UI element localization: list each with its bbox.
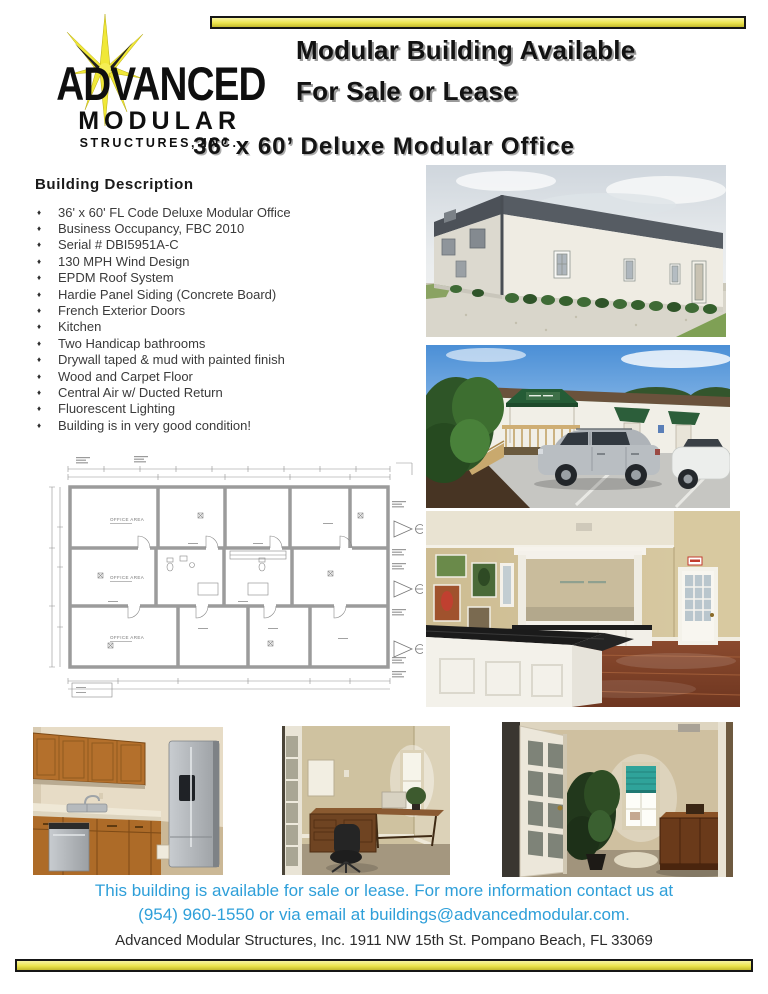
- bottom-accent-bar: [15, 959, 753, 972]
- description-item: ♦Two Handicap bathrooms: [37, 335, 291, 351]
- description-item: ♦Drywall taped & mud with painted finish: [37, 352, 291, 368]
- description-item-text: 130 MPH Wind Design: [58, 254, 190, 269]
- diamond-bullet-icon: ♦: [37, 388, 58, 397]
- description-item-text: Wood and Carpet Floor: [58, 369, 193, 384]
- logo-line-advanced: ADVANCED: [56, 60, 236, 107]
- description-item-text: EPDM Roof System: [58, 270, 174, 285]
- diamond-bullet-icon: ♦: [37, 306, 58, 315]
- diamond-bullet-icon: ♦: [37, 322, 58, 331]
- photo-office-room-2: [502, 722, 733, 877]
- room-label: OFFICE AREA: [110, 635, 144, 640]
- description-list: ♦36' x 60' FL Code Deluxe Modular Office…: [37, 204, 291, 433]
- description-heading: Building Description: [35, 176, 194, 193]
- description-item: ♦Serial # DBI5951A-C: [37, 237, 291, 253]
- logo-line-modular: MODULAR: [22, 109, 241, 134]
- top-accent-bar: [210, 16, 746, 29]
- description-item-text: Business Occupancy, FBC 2010: [58, 221, 244, 236]
- contact-line-1: This building is available for sale or l…: [0, 881, 768, 901]
- room-label: OFFICE AREA: [110, 517, 144, 522]
- description-item: ♦Fluorescent Lighting: [37, 401, 291, 417]
- headline-line-1: Modular Building Available: [296, 37, 636, 63]
- description-item-text: Central Air w/ Ducted Return: [58, 385, 223, 400]
- description-item-text: Building is in very good condition!: [58, 418, 251, 433]
- diamond-bullet-icon: ♦: [37, 404, 58, 413]
- description-item-text: Drywall taped & mud with painted finish: [58, 352, 285, 367]
- flyer-page: ADVANCED MODULAR STRUCTURES, INC. Modula…: [0, 0, 768, 994]
- description-item: ♦Hardie Panel Siding (Concrete Board): [37, 286, 291, 302]
- description-item-text: Kitchen: [58, 319, 101, 334]
- description-item-text: Serial # DBI5951A-C: [58, 237, 179, 252]
- diamond-bullet-icon: ♦: [37, 372, 58, 381]
- diamond-bullet-icon: ♦: [37, 208, 58, 217]
- description-item: ♦Central Air w/ Ducted Return: [37, 384, 291, 400]
- description-item-text: Hardie Panel Siding (Concrete Board): [58, 287, 276, 302]
- description-item-text: 36' x 60' FL Code Deluxe Modular Office: [58, 205, 291, 220]
- diamond-bullet-icon: ♦: [37, 257, 58, 266]
- description-item: ♦Kitchen: [37, 319, 291, 335]
- room-label: OFFICE AREA: [110, 575, 144, 580]
- photo-exterior-entrance: [426, 345, 730, 508]
- photo-exterior-front: [426, 165, 726, 337]
- headline-line-2: For Sale or Lease: [296, 78, 636, 104]
- floor-plan-drawing: OFFICE AREA OFFICE AREA OFFICE AREA: [38, 453, 423, 705]
- headline: Modular Building Available For Sale or L…: [296, 37, 636, 104]
- company-address: Advanced Modular Structures, Inc. 1911 N…: [0, 932, 768, 949]
- diamond-bullet-icon: ♦: [37, 290, 58, 299]
- description-item: ♦EPDM Roof System: [37, 270, 291, 286]
- photo-office-room-1: [282, 726, 450, 875]
- diamond-bullet-icon: ♦: [37, 355, 58, 364]
- description-item: ♦36' x 60' FL Code Deluxe Modular Office: [37, 204, 291, 220]
- description-item: ♦130 MPH Wind Design: [37, 253, 291, 269]
- diamond-bullet-icon: ♦: [37, 273, 58, 282]
- description-item: ♦Wood and Carpet Floor: [37, 368, 291, 384]
- photo-interior-reception: [426, 511, 740, 707]
- description-item-text: Fluorescent Lighting: [58, 401, 175, 416]
- contact-line-2: (954) 960-1550 or via email at buildings…: [0, 905, 768, 925]
- description-item-text: Two Handicap bathrooms: [58, 336, 205, 351]
- diamond-bullet-icon: ♦: [37, 339, 58, 348]
- description-item: ♦Business Occupancy, FBC 2010: [37, 220, 291, 236]
- description-item: ♦Building is in very good condition!: [37, 417, 291, 433]
- diamond-bullet-icon: ♦: [37, 421, 58, 430]
- logo-line-structures: STRUCTURES, INC.: [22, 137, 239, 150]
- company-logo: ADVANCED MODULAR STRUCTURES, INC.: [22, 60, 236, 150]
- diamond-bullet-icon: ♦: [37, 224, 58, 233]
- photo-kitchen: [33, 727, 223, 875]
- description-item: ♦French Exterior Doors: [37, 302, 291, 318]
- diamond-bullet-icon: ♦: [37, 240, 58, 249]
- description-item-text: French Exterior Doors: [58, 303, 185, 318]
